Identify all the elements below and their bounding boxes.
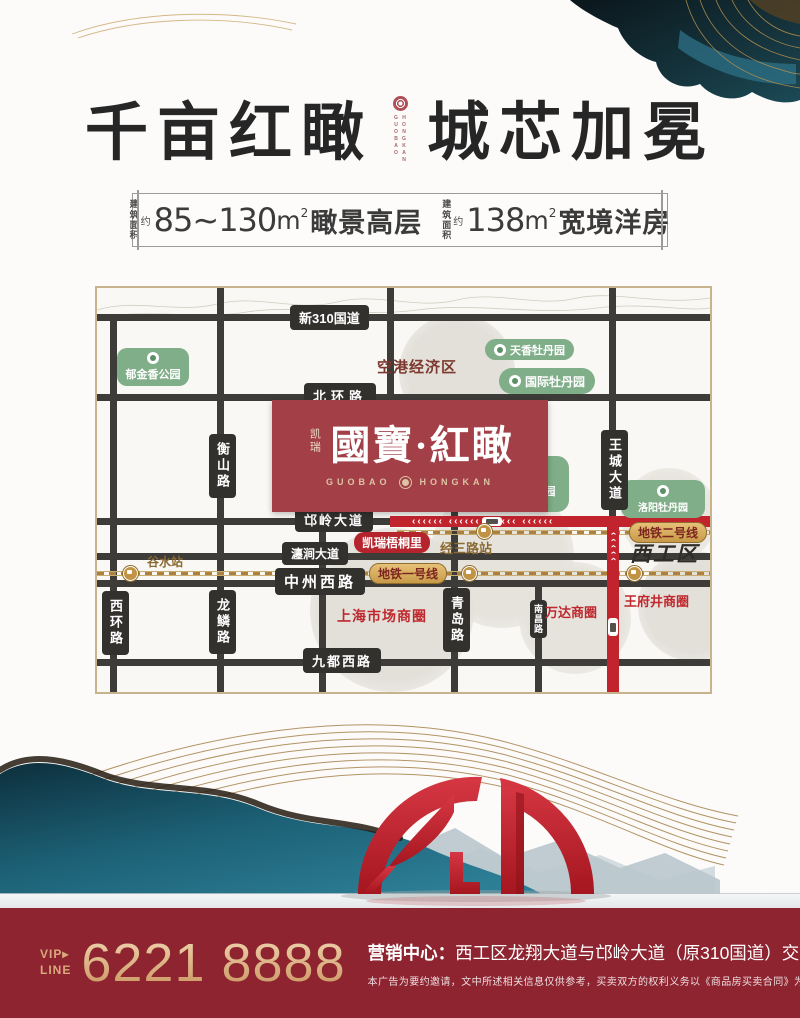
station-label-jingsan: 经三路站 bbox=[440, 538, 492, 557]
road-label-g310: 新310国道 bbox=[290, 305, 369, 330]
station-icon-gushui bbox=[123, 566, 138, 581]
project-logo-block: 凯瑞 國寶·紅瞰 GUOBAO HONGKAN bbox=[272, 400, 548, 512]
project-brand: 凯瑞 bbox=[306, 428, 322, 454]
banner-item-flat: 建筑 面积 约 138 m2 宽境洋房 bbox=[442, 199, 670, 240]
brand-latin-2: HONGKAN bbox=[401, 115, 407, 164]
road-label-jiudu: 九都西路 bbox=[303, 648, 381, 673]
station-icon-line1 bbox=[462, 566, 477, 581]
title-right: 城芯加冕 bbox=[427, 82, 715, 173]
brand-seal-latin: GUOBAO HONGKAN bbox=[393, 115, 407, 164]
road-label-wangcheng: 王城大道 bbox=[601, 430, 628, 510]
park-international: 国际牡丹园 bbox=[499, 368, 595, 394]
zone-shanghai-market: 上海市场商圈 bbox=[337, 606, 427, 626]
vip-phone-number: 6221 8888 bbox=[81, 932, 345, 994]
area-value: 138 bbox=[466, 201, 524, 239]
road-label-longlin: 龙鳞路 bbox=[209, 590, 236, 654]
project-latin: GUOBAO HONGKAN bbox=[326, 476, 494, 489]
location-map: ‹‹‹‹‹‹ ‹‹‹‹‹‹ ‹‹‹‹‹‹ ‹‹‹‹‹‹ ‹‹‹‹‹ 新310国道… bbox=[95, 286, 712, 694]
title-left: 千亩红瞰 bbox=[85, 82, 373, 173]
product-desc: 瞰景高层 bbox=[310, 201, 422, 240]
hero-landscape bbox=[0, 690, 800, 918]
vip-line-label: VIP▸ LINE bbox=[40, 947, 71, 978]
sales-center-address: 西工区龙翔大道与邙岭大道（原310国道）交会处 bbox=[455, 943, 800, 963]
project-seal-icon bbox=[399, 476, 412, 489]
product-desc: 宽境洋房 bbox=[558, 201, 670, 240]
station-label-gushui: 谷水站 bbox=[147, 553, 183, 570]
arrow-icon: ▸ bbox=[62, 947, 69, 961]
brand-seal: GUOBAO HONGKAN bbox=[385, 96, 415, 164]
park-icon bbox=[509, 375, 521, 387]
disclaimer: 本广告为要约邀请，文中所述相关信息仅供参考，买卖双方的权利义务以《商品房买卖合同… bbox=[368, 973, 760, 988]
road-g310 bbox=[97, 314, 710, 321]
station-icon-jingsan bbox=[477, 524, 492, 539]
road-label-zhongzhou: 中州西路 bbox=[275, 568, 365, 595]
sales-info: 营销中心：西工区龙翔大道与邙岭大道（原310国道）交会处 本广告为要约邀请，文中… bbox=[368, 938, 760, 988]
sculpture-reflection bbox=[366, 896, 586, 906]
road-label-hengshan: 衡山路 bbox=[209, 434, 236, 498]
park-icon bbox=[147, 352, 159, 364]
approx-label: 约 bbox=[141, 213, 151, 228]
park-icon bbox=[494, 344, 506, 356]
brand-latin-1: GUOBAO bbox=[393, 115, 399, 164]
highway-arrows-vertical: ‹‹‹‹‹ bbox=[607, 532, 619, 592]
park-tianxiang: 天香牡丹园 bbox=[485, 339, 574, 360]
road-label-xihuan: 西环路 bbox=[102, 591, 129, 655]
sales-center-line: 营销中心：西工区龙翔大道与邙岭大道（原310国道）交会处 bbox=[368, 940, 760, 965]
road-minor-north bbox=[387, 288, 394, 398]
park-luoyang: 洛阳牡丹园 bbox=[621, 480, 705, 518]
gold-wave-decoration bbox=[70, 4, 300, 40]
project-name: 國寶·紅瞰 bbox=[330, 424, 513, 468]
area-prefix: 建筑 面积 bbox=[442, 199, 451, 240]
product-banner: 建筑 面积 约 85~130 m2 瞰景高层 建筑 面积 约 138 m2 宽境… bbox=[132, 193, 668, 247]
poster: 千亩红瞰 GUOBAO HONGKAN 城芯加冕 建筑 面积 约 85~130 … bbox=[0, 0, 800, 1018]
park-tulip: 郁金香公园 bbox=[117, 348, 189, 386]
metro-line2-label: 地铁二号线 bbox=[629, 522, 707, 543]
area-prefix: 建筑 面积 bbox=[130, 199, 139, 240]
sales-center-label: 营销中心： bbox=[368, 943, 456, 963]
road-label-chanjian: 瀍涧大道 bbox=[282, 542, 348, 565]
car-icon bbox=[608, 618, 618, 636]
zone-wangfujing: 王府井商圈 bbox=[624, 591, 689, 610]
area-value: 85~130 bbox=[154, 201, 277, 239]
zone-wanda: 万达商圈 bbox=[545, 602, 597, 621]
zone-airport: 空港经济区 bbox=[377, 356, 457, 377]
park-icon bbox=[657, 485, 669, 497]
approx-label: 约 bbox=[453, 213, 463, 228]
brand-seal-icon bbox=[393, 96, 408, 111]
station-icon-line1-east bbox=[627, 566, 642, 581]
footer-bar: VIP▸ LINE 6221 8888 营销中心：西工区龙翔大道与邙岭大道（原3… bbox=[0, 908, 800, 1018]
banner-item-highrise: 建筑 面积 约 85~130 m2 瞰景高层 bbox=[130, 199, 423, 240]
road-label-qingdao: 青岛路 bbox=[443, 588, 470, 652]
poster-title: 千亩红瞰 GUOBAO HONGKAN 城芯加冕 bbox=[0, 82, 800, 173]
metro-line1-label: 地铁一号线 bbox=[369, 563, 447, 584]
zone-kairui-wutongli: 凯瑞梧桐里 bbox=[354, 532, 430, 553]
